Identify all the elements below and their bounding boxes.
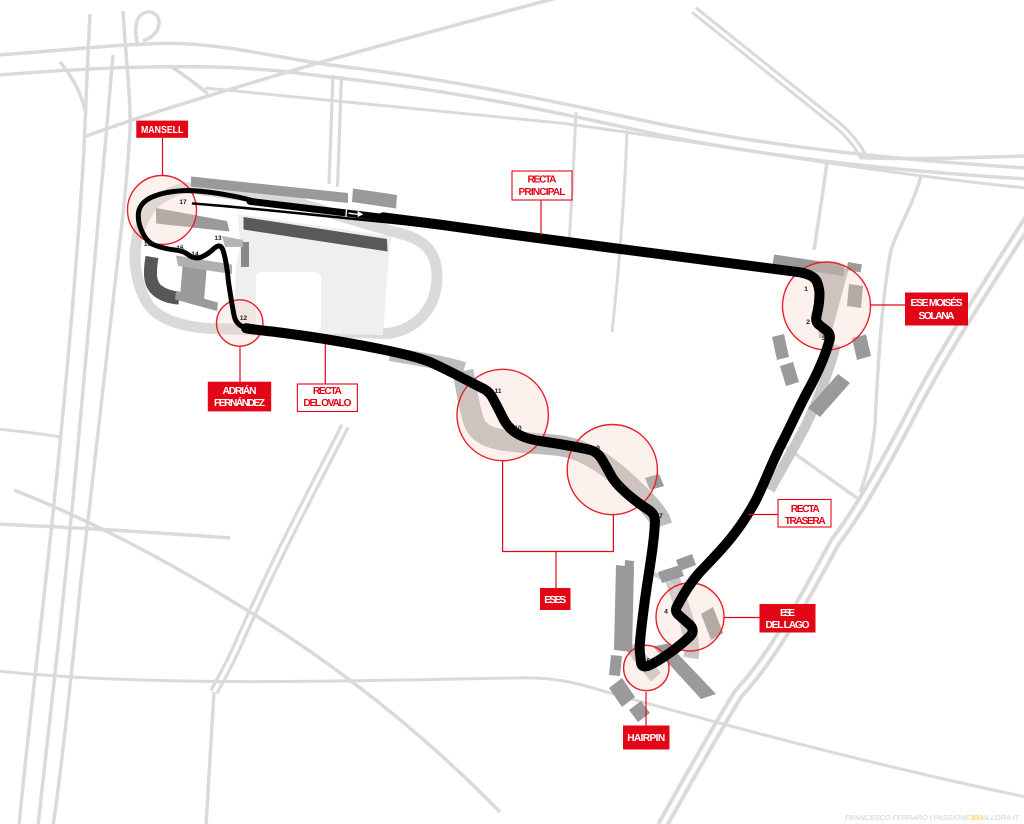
svg-text:RECTA: RECTA	[791, 504, 821, 515]
svg-text:15: 15	[176, 245, 184, 252]
svg-text:17: 17	[179, 199, 187, 206]
svg-text:DEL OVALO: DEL OVALO	[303, 398, 351, 409]
svg-text:FRANCESCO FERRARO | PASSIONE30: FRANCESCO FERRARO | PASSIONE300ALLORA.IT	[845, 814, 1020, 822]
svg-text:3: 3	[822, 335, 826, 342]
svg-text:12: 12	[240, 315, 248, 322]
svg-text:7: 7	[659, 513, 663, 520]
svg-text:10: 10	[514, 425, 522, 432]
svg-text:2: 2	[806, 319, 810, 326]
svg-text:ESES: ESES	[544, 595, 566, 606]
svg-text:4: 4	[664, 609, 668, 616]
svg-text:1: 1	[804, 286, 808, 293]
svg-text:MANSELL: MANSELL	[141, 125, 184, 136]
svg-text:RECTA: RECTA	[528, 175, 558, 186]
svg-text:PRINCIPAL: PRINCIPAL	[519, 187, 566, 198]
svg-text:ESE: ESE	[780, 608, 795, 619]
svg-text:16: 16	[144, 241, 152, 248]
svg-text:ESE MOISÉS: ESE MOISÉS	[911, 296, 963, 309]
svg-text:14: 14	[191, 251, 199, 258]
svg-text:13: 13	[214, 235, 222, 242]
svg-text:HAIRPIN: HAIRPIN	[627, 733, 665, 744]
svg-text:8: 8	[620, 482, 624, 489]
svg-text:9: 9	[596, 445, 600, 452]
svg-text:FERNÁNDEZ: FERNÁNDEZ	[214, 396, 265, 409]
svg-text:TRASERA: TRASERA	[785, 516, 827, 527]
svg-text:RECTA: RECTA	[313, 386, 343, 397]
svg-text:6: 6	[647, 658, 651, 665]
svg-text:ADRIÁN: ADRIÁN	[223, 384, 257, 397]
svg-text:5: 5	[689, 631, 693, 638]
svg-text:DEL LAGO: DEL LAGO	[766, 620, 810, 631]
svg-text:SOLANA: SOLANA	[919, 311, 956, 322]
svg-text:11: 11	[495, 388, 502, 395]
